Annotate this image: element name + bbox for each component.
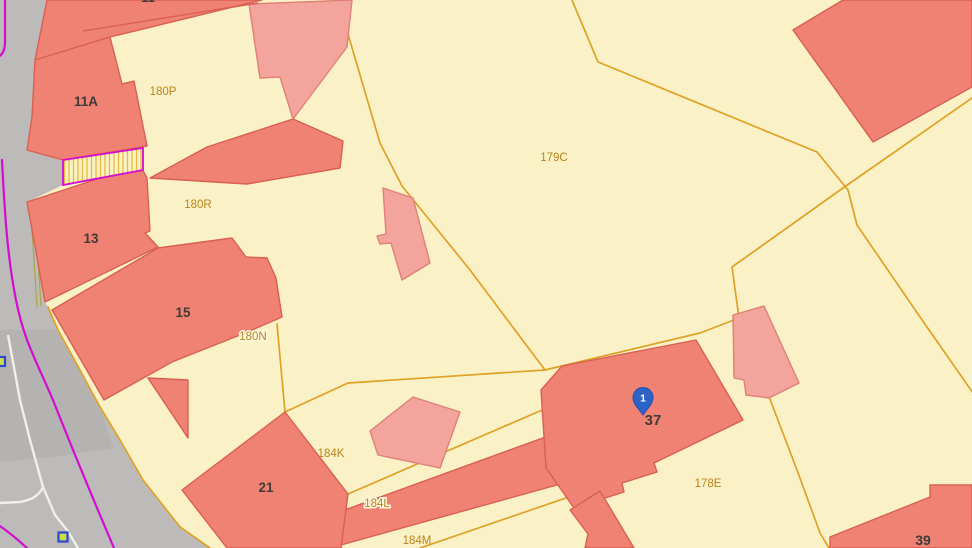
- parcel-label-179c: 179C: [540, 152, 568, 164]
- building-label-11a: 11A: [74, 94, 98, 109]
- map-canvas[interactable]: 11 11A 13 15 21 37 39 180P 180R 180N 179…: [0, 0, 972, 548]
- building-label-15: 15: [175, 305, 191, 320]
- building-label-21: 21: [258, 480, 274, 495]
- building-label-partial: 11: [141, 0, 155, 5]
- parcel-label-180n: 180N: [239, 331, 267, 343]
- building-label-13: 13: [83, 231, 99, 246]
- parcel-label-184l: 184L: [364, 498, 390, 510]
- building-label-39: 39: [915, 532, 931, 548]
- parcel-label-184k: 184K: [318, 448, 345, 460]
- survey-marker-icon: [0, 357, 5, 366]
- parcel-label-180r: 180R: [184, 199, 212, 211]
- building-label-37: 37: [645, 412, 662, 429]
- pin-number: 1: [640, 393, 646, 405]
- parcel-label-184m: 184M: [403, 535, 432, 547]
- parcel-label-178e: 178E: [695, 478, 722, 490]
- survey-marker-icon: [59, 533, 68, 542]
- parcel-label-180p: 180P: [150, 86, 177, 98]
- cadastre-map-svg[interactable]: 11 11A 13 15 21 37 39 180P 180R 180N 179…: [0, 0, 972, 548]
